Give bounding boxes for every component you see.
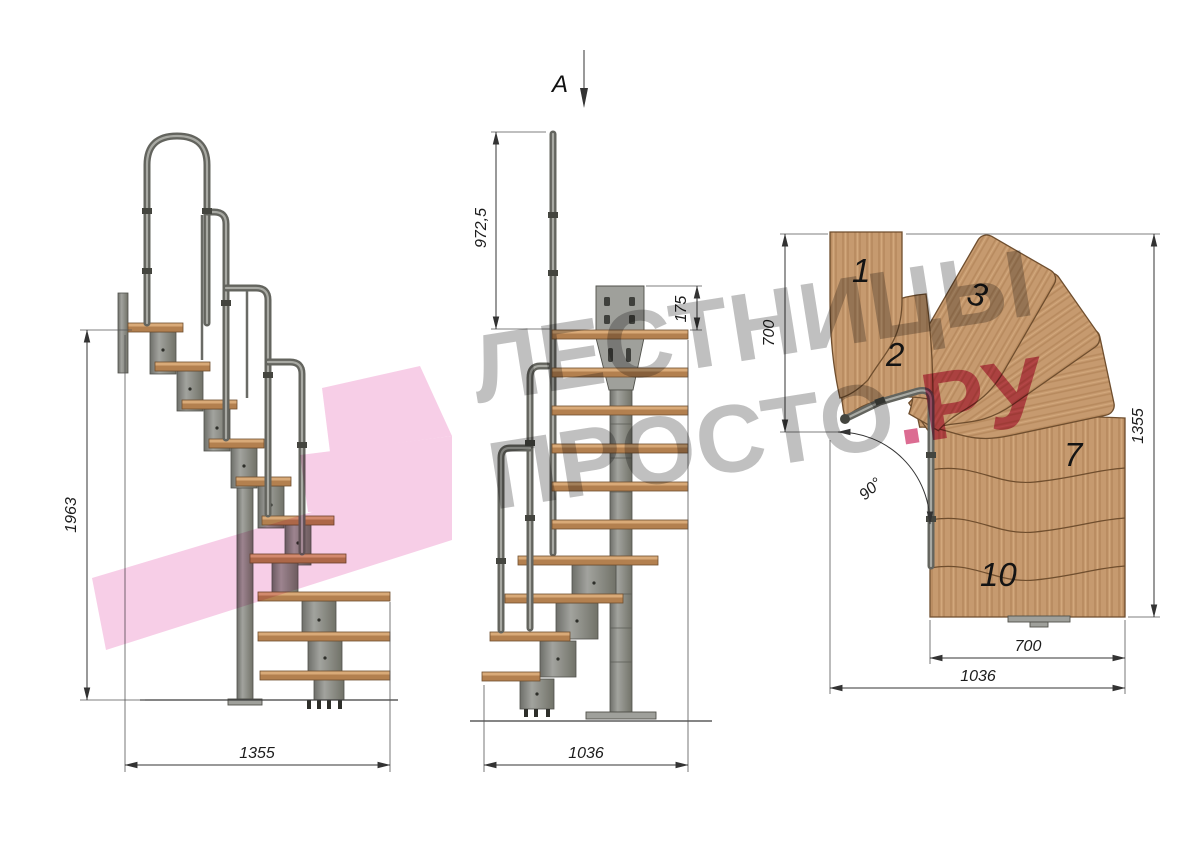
front-left-handrail <box>496 366 548 630</box>
plan-total-width-label: 1036 <box>960 668 996 685</box>
plan-base-flange <box>1008 616 1070 627</box>
plan-upper-run-label: 700 <box>761 320 778 347</box>
front-center-column <box>586 390 656 719</box>
step-number-1: 1 <box>852 252 870 289</box>
side-height-dimension-label: 1963 <box>63 497 80 533</box>
side-height-dimension: 1963 <box>63 330 145 700</box>
wall-mount-plate <box>118 293 128 373</box>
side-width-dimension: 1355 <box>125 335 390 772</box>
side-width-dimension-label: 1355 <box>239 745 275 762</box>
front-plate-dimension: 175 <box>646 286 702 330</box>
step-number-7: 7 <box>1064 436 1084 473</box>
plan-upper-run-dimension: 700 <box>761 234 840 432</box>
side-center-post <box>237 482 253 699</box>
plan-view: 1 2 3 7 10 700 1355 <box>761 231 1160 694</box>
section-label: А <box>550 71 568 98</box>
step-number-10: 10 <box>980 556 1017 593</box>
plan-fan-treads <box>830 231 1116 453</box>
plan-total-length-label: 1355 <box>1130 408 1147 444</box>
section-arrow-icon <box>580 50 588 108</box>
plan-angle-dimension: 90° <box>838 432 930 524</box>
plan-tread-width-label: 700 <box>1015 638 1042 655</box>
front-rail-height-dimension: 972,5 <box>473 132 550 329</box>
front-width-dimension-label: 1036 <box>568 745 604 762</box>
plan-straight-flight <box>930 417 1125 618</box>
front-plate-dimension-label: 175 <box>673 296 690 323</box>
plan-angle-label: 90° <box>856 475 886 504</box>
side-view: 1963 1355 <box>63 136 398 772</box>
front-view: А <box>470 50 712 772</box>
step-number-2: 2 <box>885 336 904 373</box>
front-rail-height-label: 972,5 <box>473 208 490 248</box>
drawing-sheet: 1963 1355 А <box>0 0 1200 849</box>
technical-drawing: 1963 1355 А <box>0 0 1200 849</box>
